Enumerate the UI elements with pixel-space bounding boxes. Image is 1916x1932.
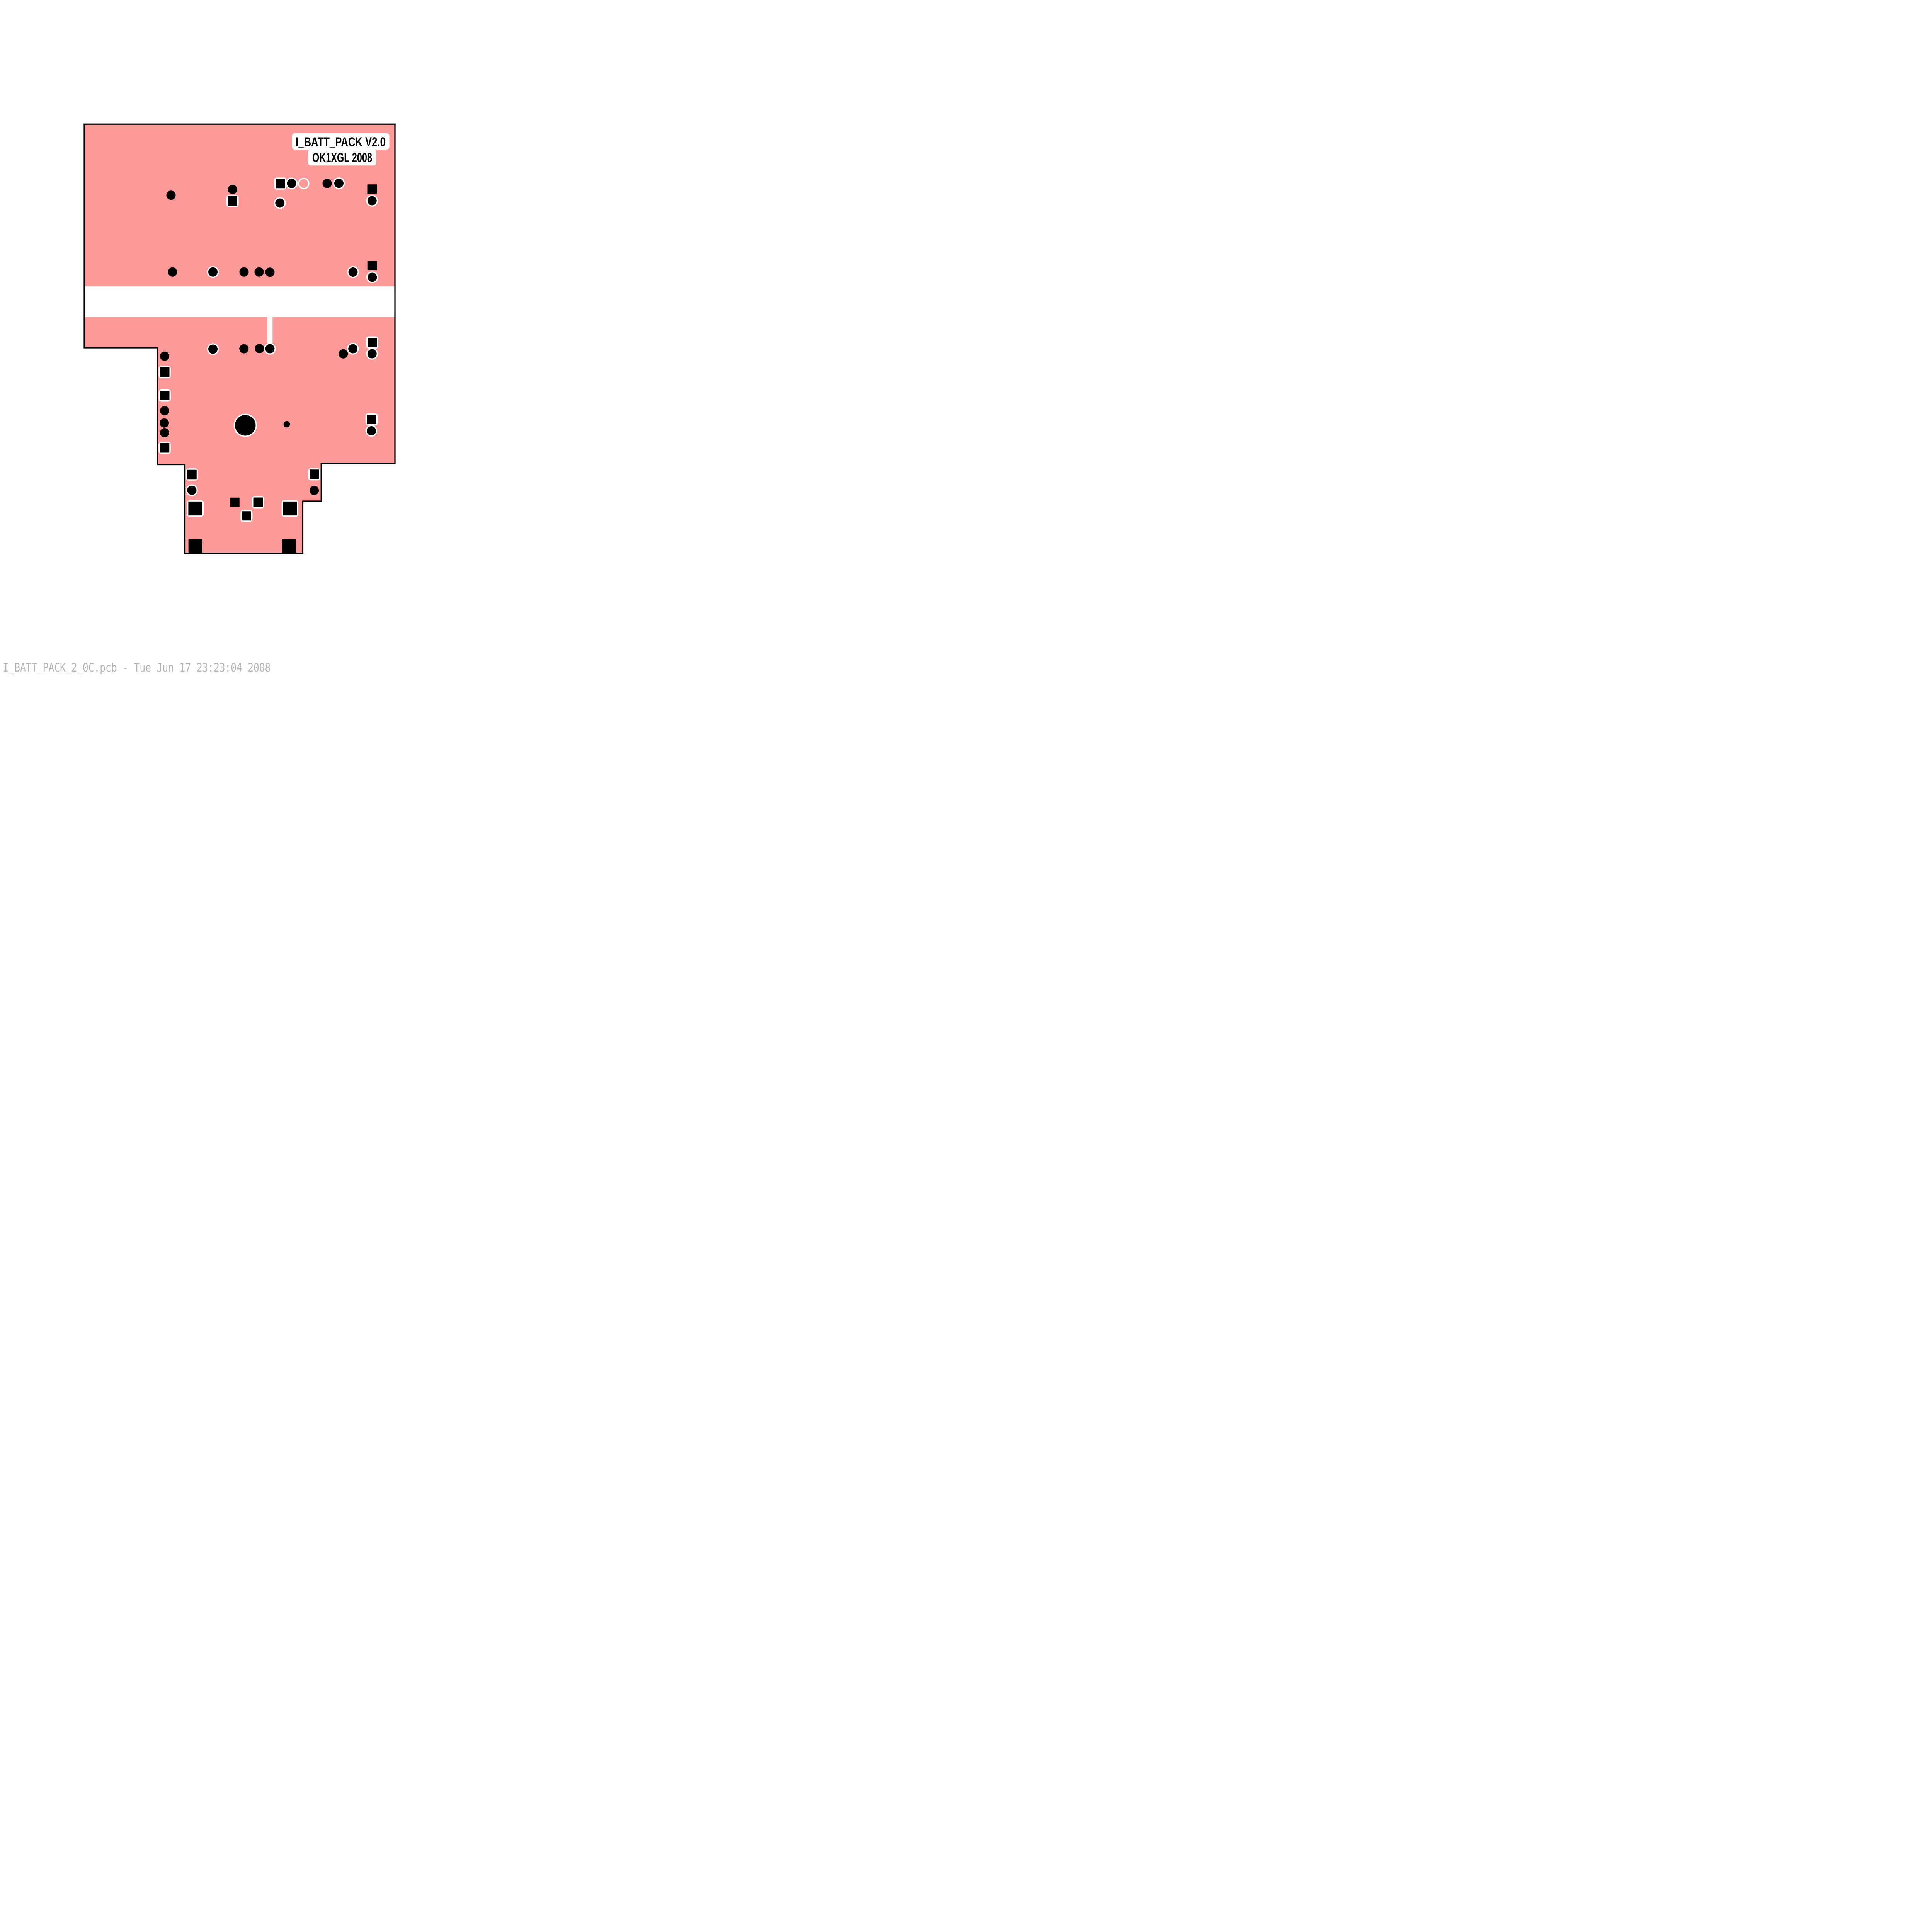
pad-round — [265, 344, 275, 354]
pad-round — [334, 179, 344, 188]
pad-round — [160, 418, 169, 428]
pad-round — [348, 344, 357, 354]
board-title: I_BATT_PACK V2.0 — [296, 135, 386, 149]
pad-square — [230, 498, 240, 507]
pad-square — [254, 498, 263, 507]
pad-square — [160, 443, 170, 453]
pad-square — [283, 502, 297, 515]
pad-square — [187, 470, 197, 480]
pad-round — [240, 267, 249, 277]
pad-square — [310, 469, 319, 479]
pad-round — [368, 196, 377, 206]
pad-round — [339, 349, 348, 359]
pad-round — [287, 179, 296, 188]
pad-round — [284, 421, 290, 428]
pad-round — [168, 267, 177, 277]
pad-round — [255, 267, 264, 277]
pad-square — [282, 539, 296, 553]
pad-square — [276, 179, 285, 189]
pad-round — [160, 406, 169, 415]
pad-round — [349, 267, 358, 277]
pad-square — [368, 184, 377, 194]
pad-round — [160, 428, 169, 437]
pad-round — [265, 267, 275, 277]
pad-round — [239, 344, 248, 354]
pad-round — [208, 345, 218, 354]
pad-round — [228, 185, 237, 194]
pad-square — [367, 415, 376, 424]
board-author-year: OK1XGL 2008 — [312, 150, 372, 165]
pad-square — [368, 261, 377, 271]
pad-round — [368, 273, 377, 282]
pcb-plot-page: I_BATT_PACK V2.0 OK1XGL 2008 I_BATT_PACK… — [0, 0, 479, 678]
plot-footer-filename-timestamp: I_BATT_PACK_2_0C.pcb - Tue Jun 17 23:23:… — [3, 661, 271, 675]
pad-square — [160, 367, 170, 377]
pad-round — [275, 199, 284, 208]
isolation-band — [85, 286, 395, 317]
pad-round — [208, 267, 218, 277]
pcb-canvas: I_BATT_PACK V2.0 OK1XGL 2008 I_BATT_PACK… — [0, 0, 479, 678]
pad-round — [235, 415, 256, 436]
pad-round — [255, 344, 264, 353]
copper-pour — [84, 124, 395, 553]
pad-round — [310, 486, 319, 495]
pad-round — [323, 179, 332, 188]
pad-square — [160, 391, 170, 401]
pad-square — [368, 338, 377, 347]
pad-round — [187, 486, 197, 495]
pad-round — [367, 426, 376, 435]
pad-drill-hole — [299, 179, 308, 188]
pad-square — [188, 502, 202, 515]
pad-round — [167, 190, 176, 200]
pad-round — [368, 349, 377, 359]
pad-round — [160, 352, 169, 361]
pad-square — [242, 511, 251, 520]
pad-square — [228, 196, 238, 206]
pad-square — [189, 539, 202, 553]
